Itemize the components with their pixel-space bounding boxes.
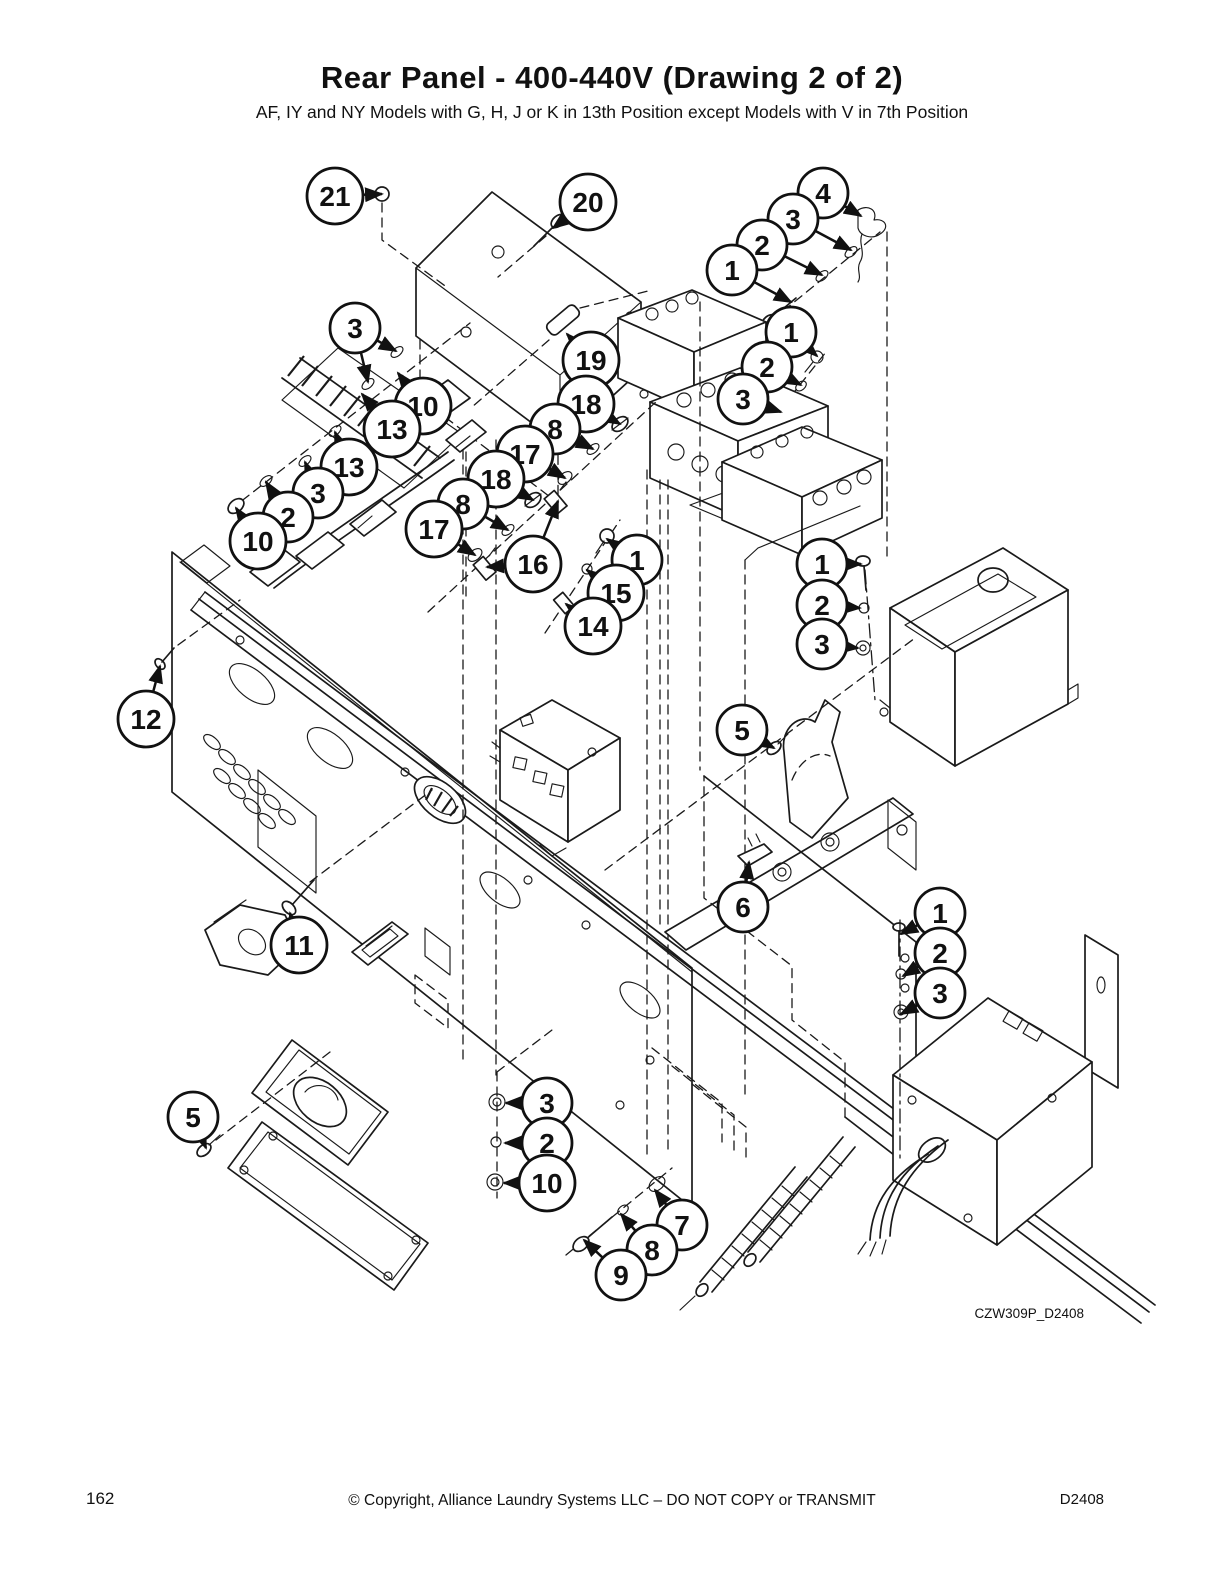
callout-leader (754, 282, 791, 302)
callout-leader (847, 607, 860, 608)
clip-6 (738, 844, 772, 866)
rail-bracket-6 (665, 798, 913, 950)
screw-11 (292, 880, 314, 905)
callout-leader (377, 340, 396, 351)
callout-leader (153, 666, 160, 692)
callout-leader (266, 482, 275, 496)
callout-leader (584, 1240, 603, 1258)
footer-doc-code: D2408 (1060, 1491, 1104, 1508)
callout-number: 8 (644, 1235, 660, 1266)
callout-leader (655, 1190, 667, 1205)
callout-number: 14 (577, 611, 609, 642)
callout-12: 12 (118, 666, 174, 747)
callout-number: 3 (539, 1088, 555, 1119)
callout-number: 13 (376, 414, 407, 445)
callout-5: 5 (168, 1092, 218, 1148)
hook-bracket-5 (765, 700, 848, 838)
callout-leader (847, 647, 858, 648)
callout-number: 7 (674, 1210, 690, 1241)
callout-5: 5 (717, 705, 774, 755)
callout-number: 3 (814, 629, 830, 660)
callout-10: 10 (504, 1155, 575, 1211)
standoff-16a (544, 490, 567, 514)
callout-3: 3 (901, 968, 965, 1018)
callout-number: 2 (759, 352, 775, 383)
callout-number: 3 (310, 478, 326, 509)
callout-leader (809, 349, 817, 356)
callout-16: 16 (487, 501, 561, 592)
drawing-code: CZW309P_D2408 (974, 1306, 1084, 1321)
callout-number: 21 (319, 181, 350, 212)
callout-20: 20 (553, 174, 616, 230)
callout-number: 5 (734, 715, 750, 746)
callout-number: 3 (347, 313, 363, 344)
gland-and-flange (205, 790, 448, 1165)
callout-number: 10 (531, 1168, 562, 1199)
spacer-19 (545, 303, 582, 337)
callout-number: 19 (575, 345, 606, 376)
callout-number: 3 (785, 204, 801, 235)
callout-leader (784, 256, 822, 275)
callout-3: 3 (330, 303, 396, 382)
callout-number: 11 (284, 930, 314, 961)
footer-copyright: © Copyright, Alliance Laundry Systems LL… (0, 1492, 1224, 1510)
callout-leader (363, 194, 382, 195)
callout-number: 2 (754, 230, 770, 261)
power-supply (858, 920, 1118, 1256)
callout-14: 14 (565, 598, 621, 654)
callout-number: 3 (735, 384, 751, 415)
callout-number: 12 (130, 704, 161, 735)
callout-leader (621, 1214, 636, 1231)
callout-number: 1 (783, 317, 799, 348)
callout-21: 21 (307, 168, 382, 224)
callout-number: 10 (242, 526, 273, 557)
callout-6: 6 (718, 862, 768, 932)
callout-number: 3 (932, 978, 948, 1009)
manual-page: { "page": { "title": "Rear Panel - 400-4… (0, 0, 1224, 1584)
callout-number: 2 (814, 590, 830, 621)
callout-number: 1 (932, 898, 948, 929)
screw-1c (600, 529, 614, 543)
callout-number: 9 (613, 1260, 629, 1291)
callout-leader (815, 231, 851, 250)
bolt-9 (585, 1217, 612, 1240)
callout-number: 1 (724, 255, 740, 286)
callout-number: 5 (185, 1102, 201, 1133)
callout-leader (361, 352, 368, 382)
callout-number: 16 (517, 549, 548, 580)
callout-number: 4 (815, 178, 831, 209)
callout-leader (487, 566, 505, 567)
callout-number: 6 (735, 892, 751, 923)
callout-number: 17 (418, 514, 449, 545)
callout-number: 1 (814, 549, 830, 580)
callout-number: 2 (932, 938, 948, 969)
callout-leader (577, 441, 593, 449)
screw-1br (893, 923, 905, 931)
callout-number: 20 (572, 187, 603, 218)
exploded-diagram: 2120194321123310131332101881718817161151… (0, 0, 1224, 1584)
callout-3: 3 (797, 619, 858, 669)
